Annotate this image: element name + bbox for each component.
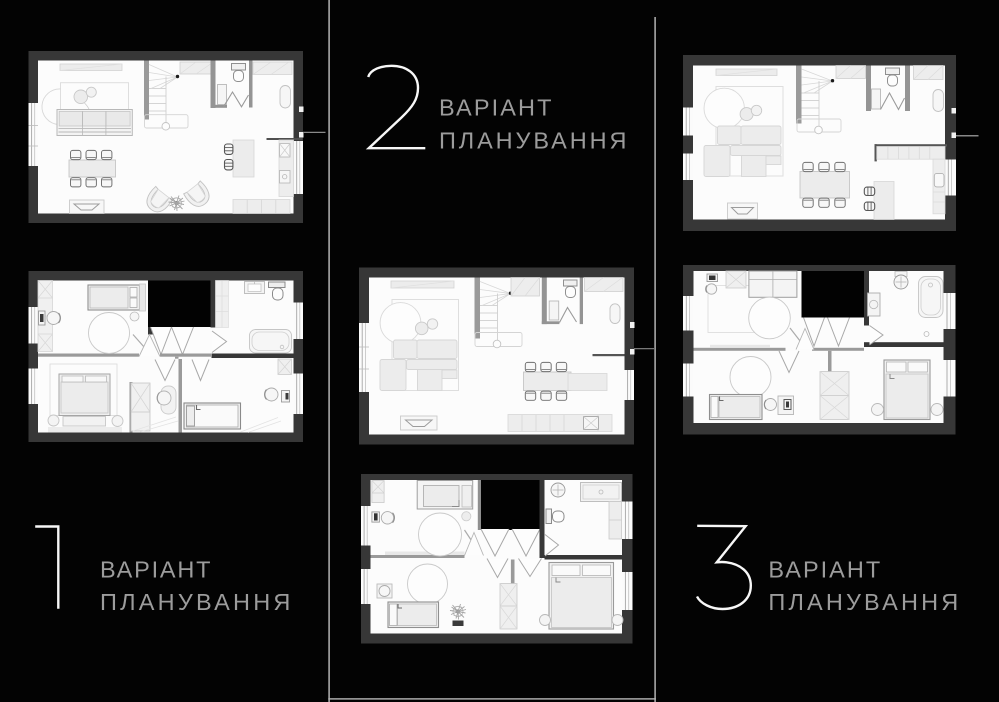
svg-text:ВАРІАНТ: ВАРІАНТ [768,557,880,583]
svg-text:ПЛАНУВАННЯ: ПЛАНУВАННЯ [768,589,958,615]
svg-text:ВАРІАНТ: ВАРІАНТ [439,95,552,121]
svg-text:ВАРІАНТ: ВАРІАНТ [100,557,211,583]
svg-text:ПЛАНУВАННЯ: ПЛАНУВАННЯ [439,128,627,154]
svg-text:ПЛАНУВАННЯ: ПЛАНУВАННЯ [100,589,290,615]
